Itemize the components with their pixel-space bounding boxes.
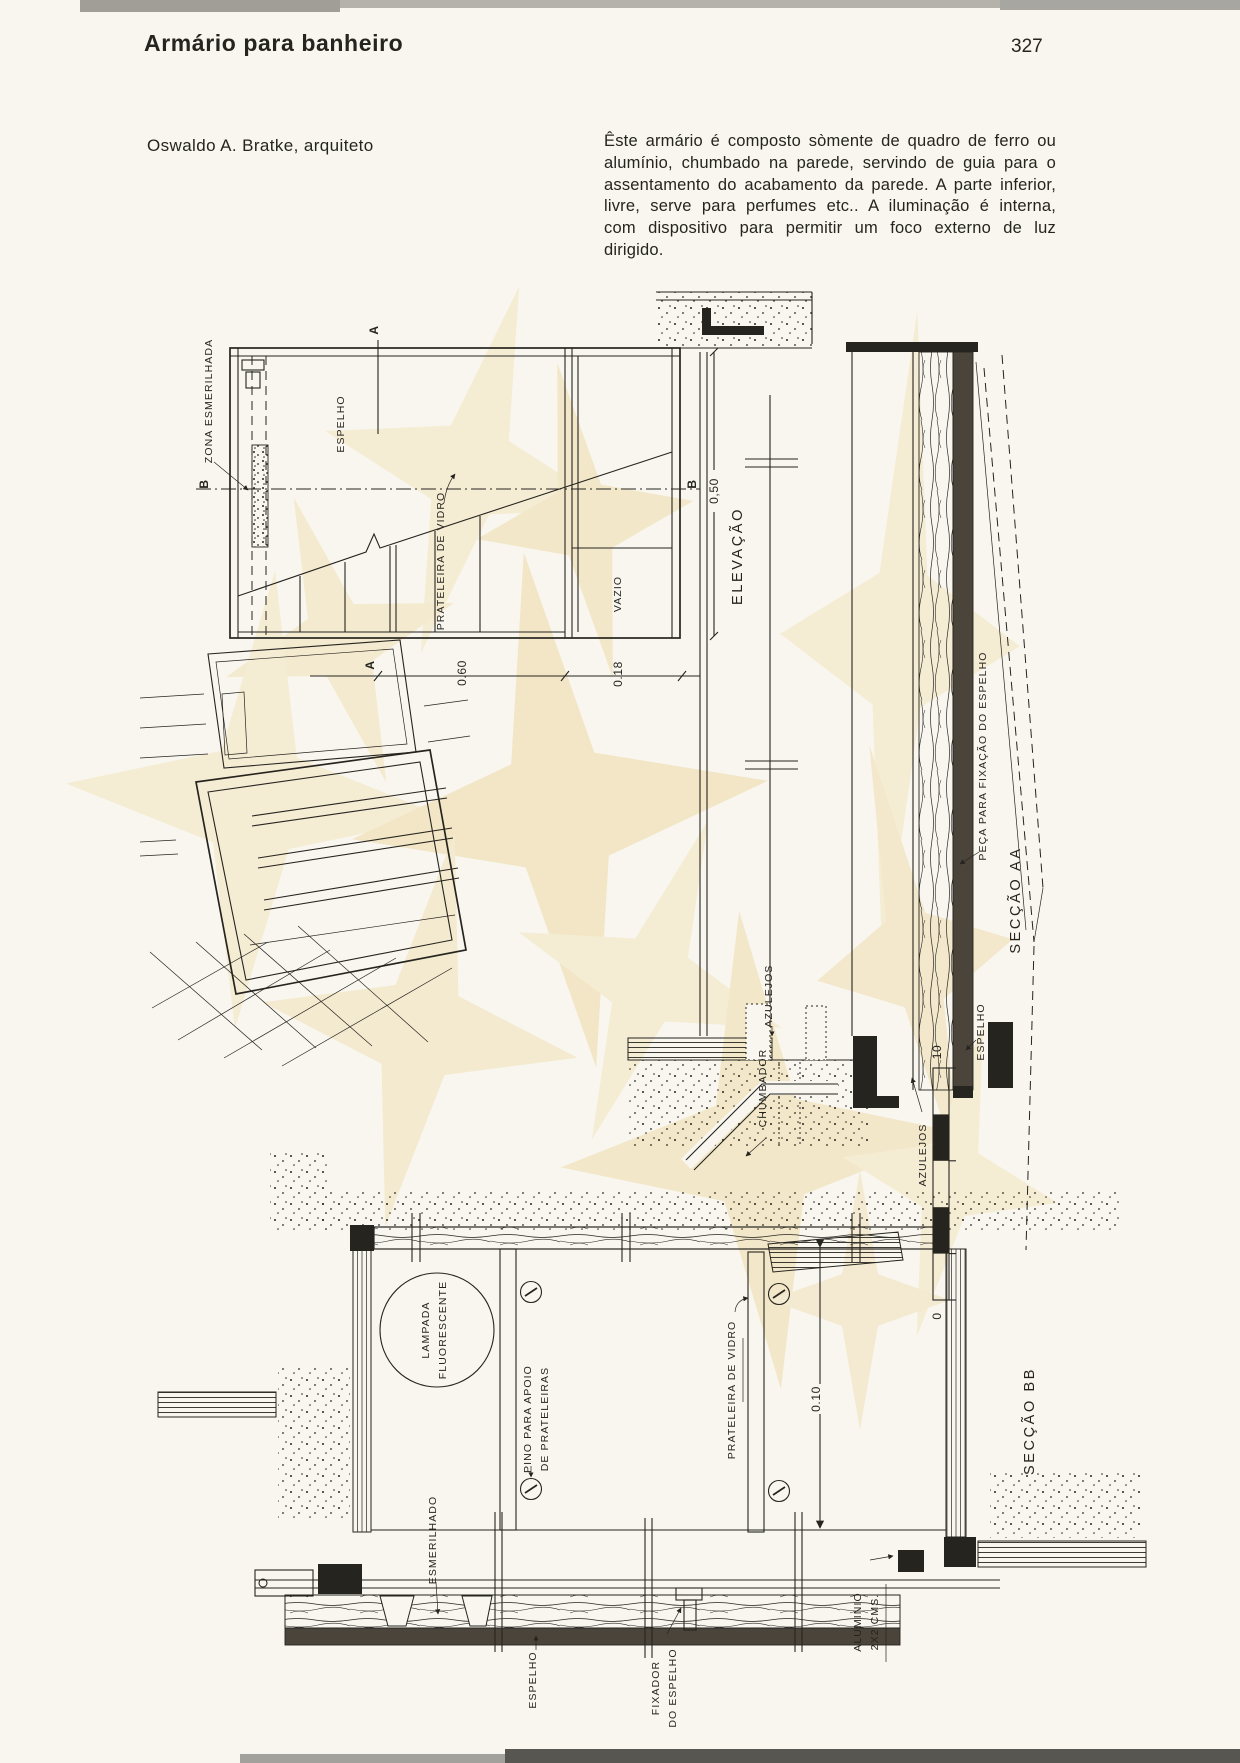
label-pino-line2: DE PRATELEIRAS — [539, 1367, 551, 1471]
section-aa-title: SECÇÃO AA — [1007, 846, 1024, 953]
marker-b-right: B — [685, 479, 699, 488]
marker-a-top: A — [367, 325, 381, 334]
elevation-title: ELEVAÇÃO — [729, 507, 746, 605]
author-line: Oswaldo A. Bratke, arquiteto — [147, 136, 374, 156]
scale-min-label: 0 — [930, 1312, 944, 1319]
label-lampada-line1: LAMPADA — [420, 1301, 432, 1358]
label-azulejos-parede: AZULEJOS — [763, 964, 775, 1027]
page-title: Armário para banheiro — [144, 30, 403, 57]
magazine-page: ZONA ESMERILHADA ESPELHO PRATELEIRA DE V… — [0, 0, 1240, 1763]
dim-010: 0.10 — [809, 1386, 823, 1412]
label-prateleira-vidro-bb: PRATELEIRA DE VIDRO — [726, 1321, 738, 1460]
dim-060: 0.60 — [455, 660, 469, 686]
label-fixador-line2: DO ESPELHO — [667, 1648, 679, 1727]
label-pino-line1: PINO PARA APOIO — [522, 1365, 534, 1473]
section-bb-title: SECÇÃO BB — [1021, 1367, 1038, 1475]
label-espelho-seccao-aa: ESPELHO — [975, 1003, 987, 1060]
intro-paragraph: Êste armário é composto sòmente de quadr… — [604, 131, 1056, 262]
marker-a-bottom: A — [363, 660, 377, 669]
dim-018: 0.18 — [611, 661, 625, 687]
technical-drawings: ZONA ESMERILHADA ESPELHO PRATELEIRA DE V… — [0, 0, 1240, 1763]
label-aluminio-line1: ALUMINIO — [852, 1592, 864, 1652]
label-prateleira-vidro-elevacao: PRATELEIRA DE VIDRO — [435, 492, 447, 631]
page-number: 327 — [1011, 36, 1043, 58]
label-zona-esmerilhada: ZONA ESMERILHADA — [203, 339, 215, 463]
label-vazio: VAZIO — [612, 576, 624, 612]
label-azulejos-piso: AZULEJOS — [917, 1123, 929, 1186]
label-aluminio-line2: 2X2 CMS. — [869, 1594, 881, 1651]
label-lampada-line2: FLUORESCENTE — [437, 1281, 449, 1379]
label-fixador-line1: FIXADOR — [650, 1661, 662, 1715]
label-espelho-seccao-bb: ESPELHO — [527, 1651, 539, 1708]
marker-b-left: B — [197, 479, 211, 488]
dim-050: 0,50 — [707, 478, 721, 504]
label-esmerilhado: ESMERILHADO — [427, 1496, 439, 1585]
shelf-pin-screws — [521, 1282, 790, 1502]
label-peca-fixacao: PEÇA PARA FIXAÇÃO DO ESPELHO — [976, 651, 989, 860]
label-chumbador: CHUMBADOR — [757, 1049, 769, 1128]
label-espelho-elevacao: ESPELHO — [335, 395, 347, 452]
scale-max-label: 10 — [930, 1045, 944, 1060]
